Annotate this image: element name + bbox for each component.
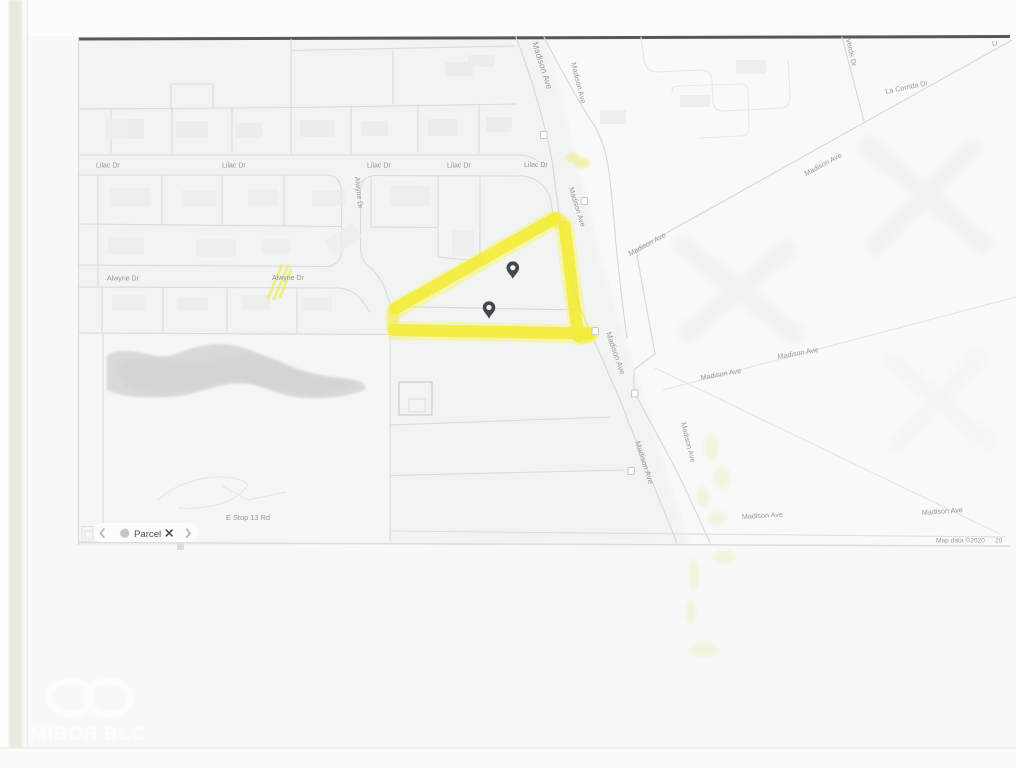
svg-text:Lilac Dr: Lilac Dr	[524, 162, 548, 169]
svg-text:Alwyne Dr: Alwyne Dr	[107, 276, 140, 283]
svg-text:Parcel: Parcel	[134, 529, 161, 540]
svg-text:Lilac Dr: Lilac Dr	[367, 163, 391, 170]
svg-text:Lilac Dr: Lilac Dr	[447, 163, 471, 170]
svg-text:E Stop 13 Rd: E Stop 13 Rd	[226, 513, 270, 522]
svg-text:MIBOR BLC: MIBOR BLC	[31, 724, 146, 745]
svg-text:Lilac Dr: Lilac Dr	[96, 163, 120, 170]
svg-text:Map data ©2020: Map data ©2020	[936, 537, 985, 545]
svg-text:Alwyne Dr: Alwyne Dr	[272, 275, 305, 282]
svg-text:Lilac Dr: Lilac Dr	[222, 163, 246, 170]
svg-text:U: U	[992, 39, 997, 48]
svg-text:20: 20	[995, 538, 1003, 545]
